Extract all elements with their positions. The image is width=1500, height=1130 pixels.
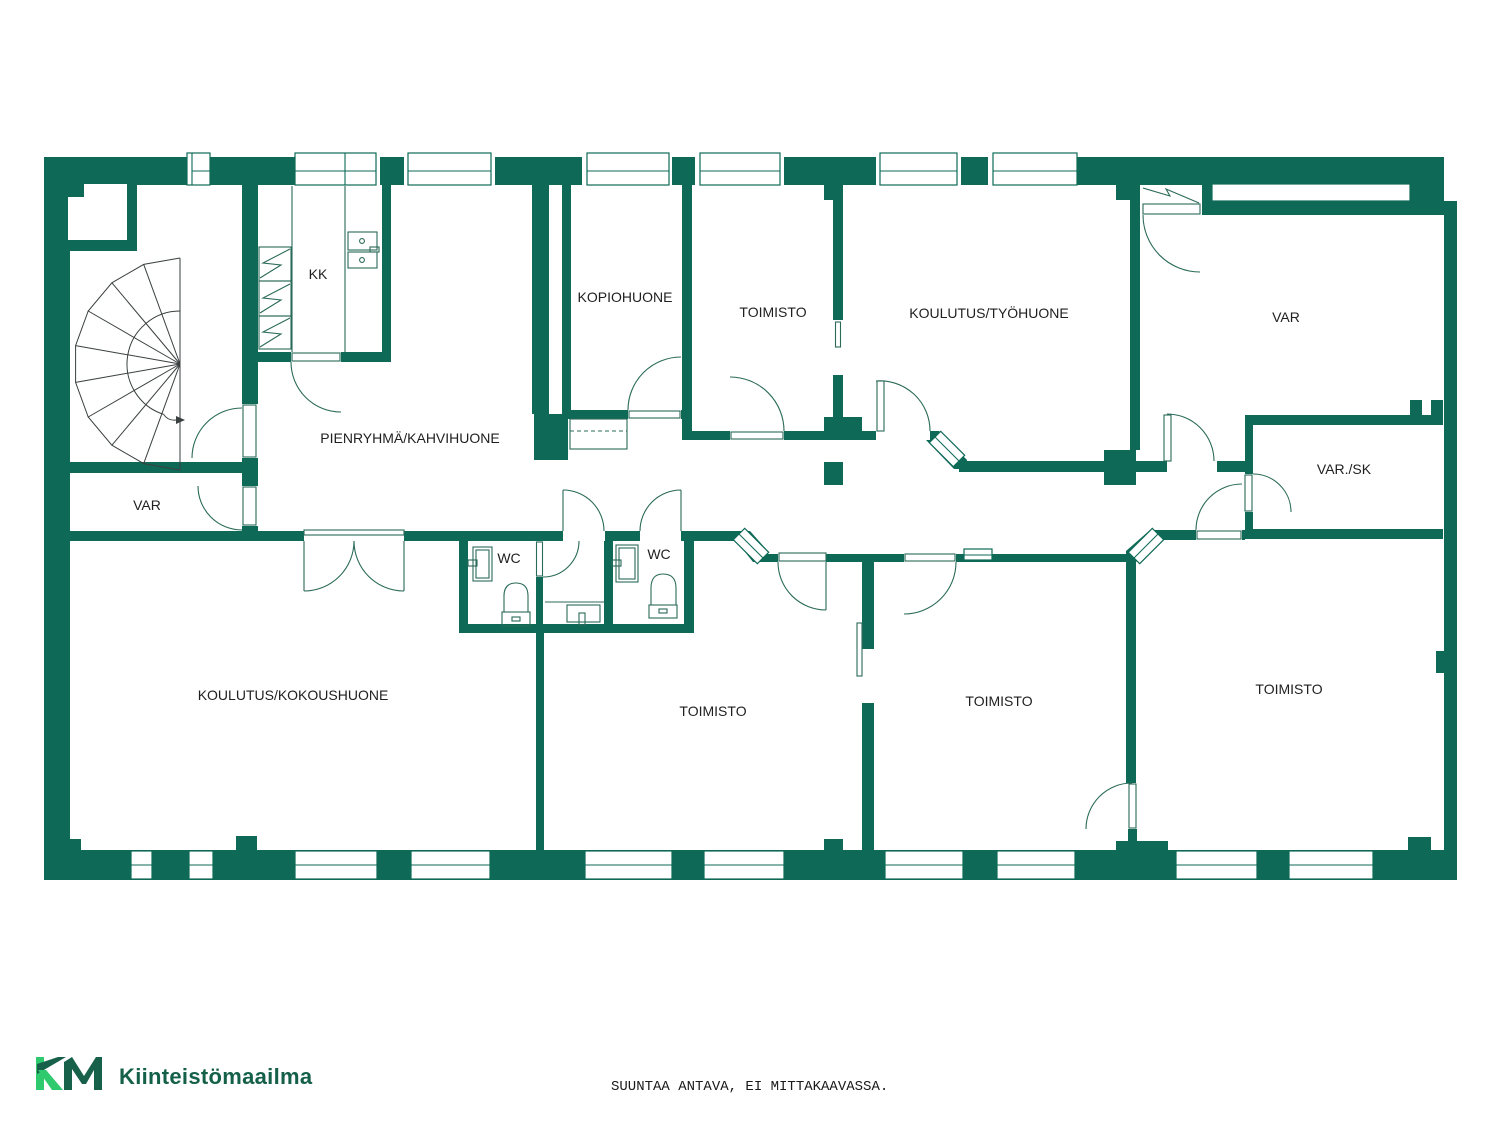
svg-text:VAR: VAR xyxy=(1272,309,1300,325)
svg-text:TOIMISTO: TOIMISTO xyxy=(965,693,1032,709)
svg-text:KOULUTUS/TYÖHUONE: KOULUTUS/TYÖHUONE xyxy=(909,304,1068,321)
svg-text:KK: KK xyxy=(309,266,328,282)
svg-text:TOIMISTO: TOIMISTO xyxy=(679,703,746,719)
svg-text:SUUNTAA ANTAVA, EI MITTAKAAVAS: SUUNTAA ANTAVA, EI MITTAKAAVASSA. xyxy=(611,1079,888,1095)
svg-text:KOULUTUS/KOKOUSHUONE: KOULUTUS/KOKOUSHUONE xyxy=(198,687,389,703)
svg-text:VAR: VAR xyxy=(133,497,161,513)
svg-text:TOIMISTO: TOIMISTO xyxy=(739,304,806,320)
svg-text:WC: WC xyxy=(497,550,520,566)
svg-text:KOPIOHUONE: KOPIOHUONE xyxy=(578,289,673,305)
svg-text:TOIMISTO: TOIMISTO xyxy=(1255,681,1322,697)
svg-text:WC: WC xyxy=(647,546,670,562)
svg-text:PIENRYHMÄ/KAHVIHUONE: PIENRYHMÄ/KAHVIHUONE xyxy=(320,430,499,446)
svg-text:Kiinteistömaailma: Kiinteistömaailma xyxy=(119,1064,313,1089)
svg-text:VAR./SK: VAR./SK xyxy=(1317,461,1372,477)
